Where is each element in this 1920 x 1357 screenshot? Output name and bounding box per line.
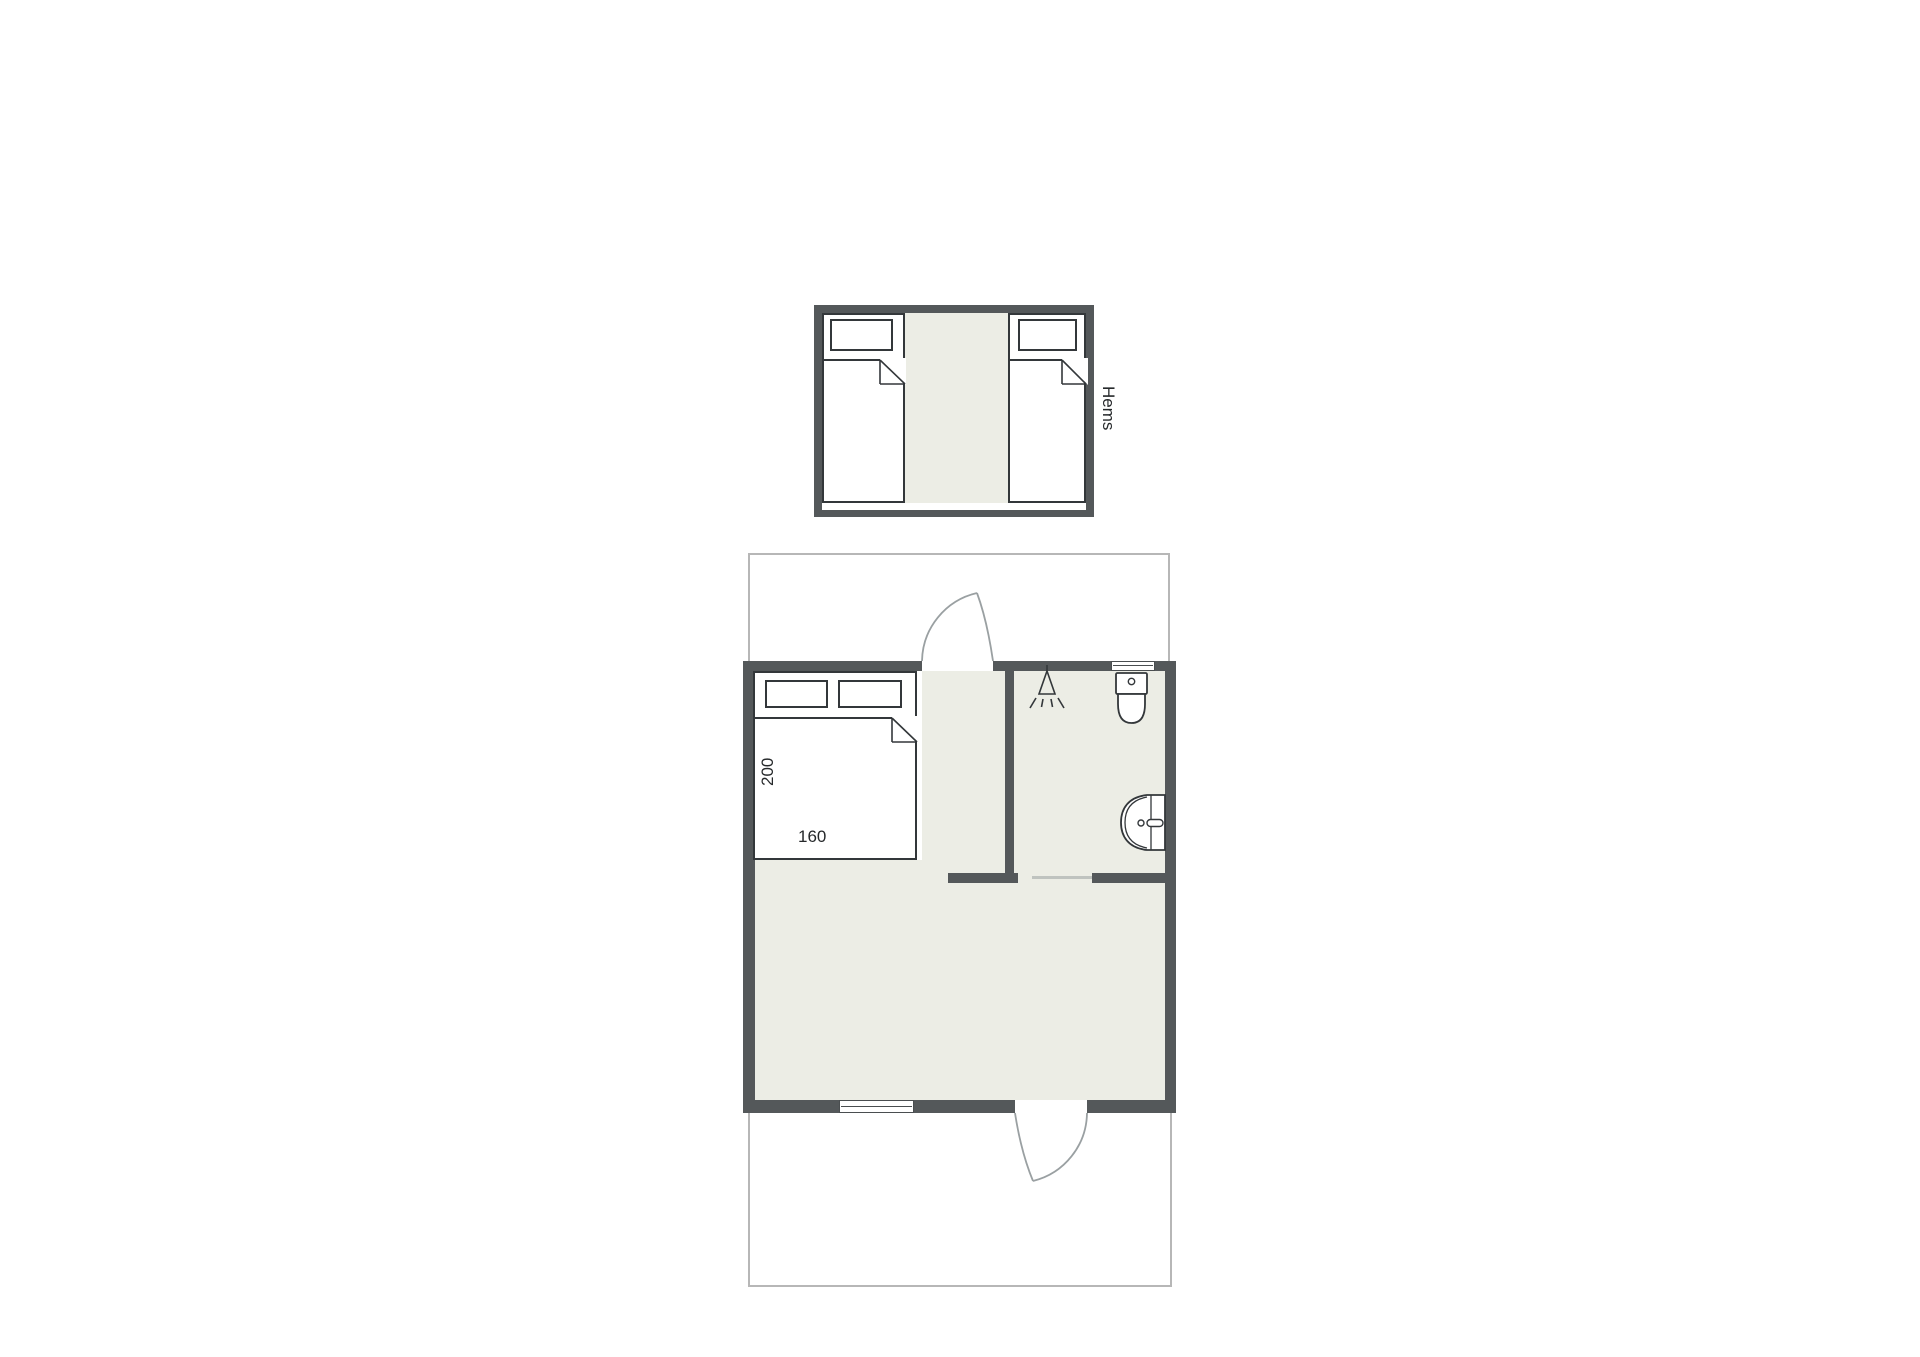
main-floor-plan: [743, 661, 1176, 1113]
deck-top: [748, 553, 1170, 665]
bathroom-wall-bottom: [1092, 873, 1165, 883]
hall-wall-stub: [948, 873, 1018, 883]
bathroom-wall-vertical: [1005, 671, 1014, 882]
loft-bed-left-pillow: [830, 319, 893, 351]
living-room-window-mullion: [841, 1106, 912, 1107]
deck-bottom: [748, 1111, 1172, 1287]
terrace-door-opening: [1015, 1100, 1087, 1113]
entry-door-opening: [922, 661, 993, 671]
double-bed-pillow-right: [838, 680, 902, 708]
loft-plan: [814, 305, 1094, 517]
bathroom-sliding-door: [1032, 876, 1092, 879]
double-bed-pillow-left: [765, 680, 828, 708]
loft-edge-strip: [822, 503, 1086, 510]
bathroom-window-mullion: [1113, 665, 1153, 666]
bed-width-label: 160: [798, 828, 826, 846]
bathroom-window: [1111, 661, 1155, 671]
floor-plan-canvas: Hems 200 160: [0, 0, 1920, 1357]
loft-bed-right-pillow: [1018, 319, 1077, 351]
living-room-window: [839, 1100, 914, 1113]
loft-label: Hems: [1099, 386, 1117, 430]
bed-length-label: 200: [759, 758, 777, 786]
